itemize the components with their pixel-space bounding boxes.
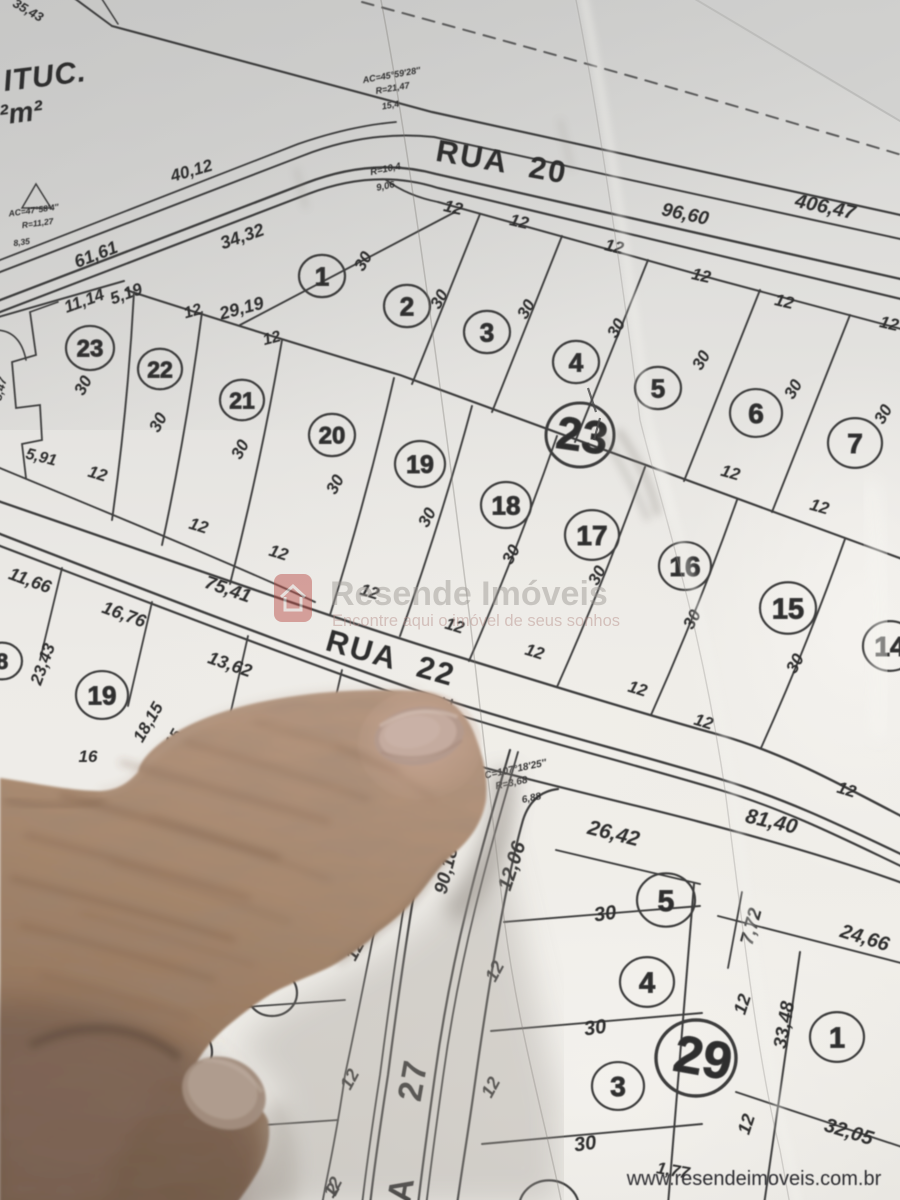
- svg-text:19: 19: [406, 451, 434, 479]
- svg-text:30: 30: [573, 1132, 598, 1157]
- svg-text:5: 5: [651, 373, 665, 403]
- svg-text:3: 3: [610, 1071, 626, 1102]
- svg-text:²m²: ²m²: [0, 94, 45, 130]
- svg-text:29: 29: [669, 1025, 736, 1092]
- svg-text:2: 2: [400, 291, 414, 321]
- svg-text:30: 30: [593, 902, 618, 927]
- svg-text:20: 20: [319, 423, 346, 450]
- svg-text:21: 21: [229, 387, 255, 413]
- svg-text:7: 7: [847, 428, 863, 459]
- svg-text:Encontre aqui o imóvel de seus: Encontre aqui o imóvel de seus sonhos: [332, 612, 620, 630]
- svg-text:4: 4: [639, 967, 655, 999]
- svg-text:4: 4: [569, 347, 584, 377]
- svg-text:17: 17: [576, 520, 607, 551]
- svg-text:22: 22: [147, 356, 173, 382]
- svg-text:30: 30: [583, 1016, 608, 1041]
- svg-text:8: 8: [0, 649, 8, 674]
- svg-text:23: 23: [77, 336, 104, 363]
- svg-text:15: 15: [772, 593, 804, 625]
- svg-text:1: 1: [829, 1022, 845, 1054]
- svg-text:18: 18: [492, 490, 521, 520]
- svg-text:1: 1: [315, 261, 329, 291]
- svg-text:Resende Imóveis: Resende Imóveis: [330, 575, 608, 613]
- svg-text:16: 16: [79, 747, 98, 766]
- svg-text:5: 5: [658, 885, 675, 918]
- svg-text:3: 3: [480, 317, 494, 347]
- svg-text:www.resendeimoveis.com.br: www.resendeimoveis.com.br: [626, 1168, 882, 1190]
- svg-text:19: 19: [88, 680, 117, 710]
- svg-text:6: 6: [748, 398, 764, 429]
